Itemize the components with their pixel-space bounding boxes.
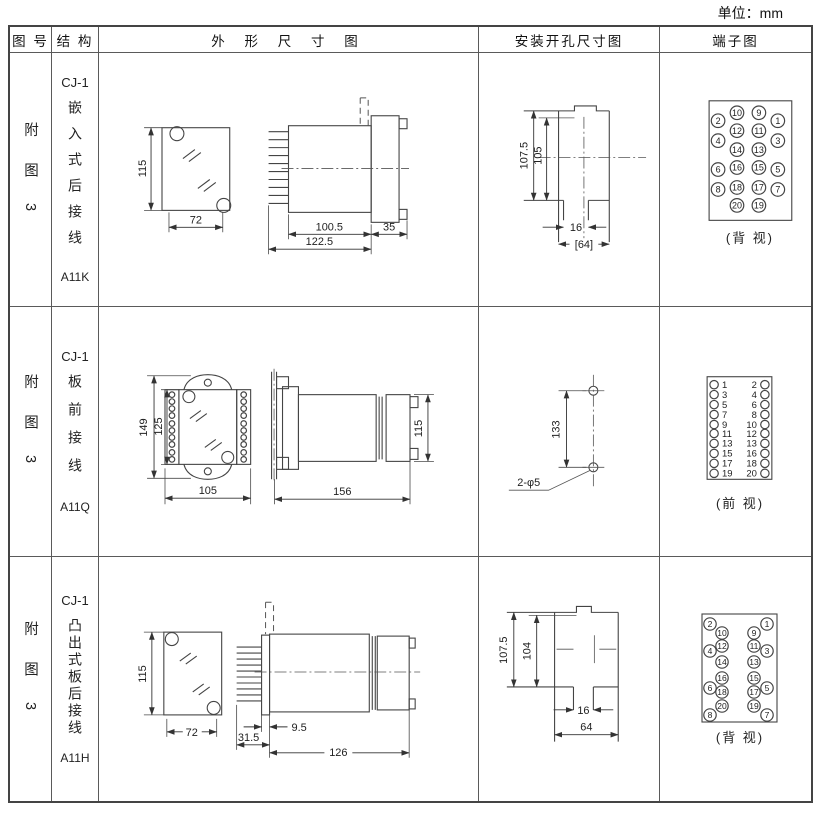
terminal-number: 17	[749, 687, 759, 697]
terminal-circle	[710, 390, 718, 398]
terminal-number: 14	[732, 145, 742, 155]
dim-front-width: 72	[190, 214, 202, 226]
outline-drawing-a11q: 149 125 105 115 156	[99, 307, 478, 556]
dim-install-span: 133	[551, 420, 563, 438]
dim-front-height: 115	[137, 665, 149, 683]
header-install-label: 安装开孔尺寸图	[515, 30, 624, 50]
terminal-number: 20	[732, 201, 742, 211]
figure-cell-a11k: 附图3	[10, 53, 52, 307]
terminal-circle	[710, 439, 718, 447]
install-cell-a11q: 133 2-φ5	[479, 307, 660, 557]
terminal-number: 7	[775, 185, 780, 195]
terminal-number: 8	[716, 185, 721, 195]
terminal-number: 11	[754, 126, 763, 136]
dim-side-body: 100.5	[316, 221, 343, 233]
figure-label: 附图3	[20, 374, 41, 489]
outline-cell-a11q: 149 125 105 115 156	[99, 307, 479, 557]
terminal-number: 10	[732, 108, 742, 118]
dim-front-height: 115	[137, 160, 149, 177]
dim-front-h2: 125	[153, 417, 165, 435]
code-label: A11H	[60, 751, 89, 765]
terminal-circle	[710, 381, 718, 389]
unit-label: 单位：mm	[718, 3, 783, 23]
terminal-number: 6	[708, 683, 713, 693]
code-label: A11K	[61, 270, 89, 284]
mounting-label: 凸出式板后接线	[65, 618, 85, 737]
terminal-number: 12	[732, 126, 742, 136]
dim-install-holes: 2-φ5	[517, 477, 540, 489]
terminal-circle	[241, 421, 247, 427]
terminal-number: 5	[775, 165, 780, 175]
terminal-circle	[169, 399, 175, 405]
terminal-number: 18	[717, 687, 727, 697]
dim-install-span: [64]	[575, 239, 593, 251]
dim-side-length: 156	[333, 486, 351, 498]
terminal-circle	[241, 392, 247, 398]
dim-side-height: 115	[413, 420, 425, 437]
terminal-number: 8	[708, 710, 713, 720]
terminal-number: 19	[754, 201, 764, 211]
terminal-view-label: (背 视)	[726, 230, 774, 245]
terminal-view-label: (前 视)	[716, 496, 764, 511]
terminal-circle	[241, 457, 247, 463]
terminal-number: 18	[732, 183, 742, 193]
install-cell-a11k: 107.5 105 16 [64]	[479, 53, 660, 307]
install-cell-a11h: 107.5 104 16 64	[479, 557, 660, 801]
terminal-number: 6	[716, 165, 721, 175]
dim-install-notch: 16	[570, 222, 582, 234]
terminal-circle	[169, 392, 175, 398]
terminal-number: 4	[716, 136, 721, 146]
terminal-circle	[761, 381, 769, 389]
terminal-number: 10	[717, 628, 727, 638]
figure-cell-a11h: 附图3	[10, 557, 52, 801]
header-install: 安装开孔尺寸图	[479, 27, 660, 53]
figure-cell-a11q: 附图3	[10, 307, 52, 557]
terminal-diagram-a11q: (前 视) 1234567891011121313151617181920	[660, 307, 811, 556]
outline-cell-a11k: 115 72 100.5 35 122.5	[99, 53, 479, 307]
model-label: CJ-1	[61, 75, 88, 90]
terminal-circle	[710, 410, 718, 418]
terminal-circle	[241, 442, 247, 448]
terminal-number: 9	[752, 628, 757, 638]
terminal-cell-a11q: (前 视) 1234567891011121313151617181920	[660, 307, 811, 557]
outline-drawing-a11k: 115 72 100.5 35 122.5	[99, 53, 478, 306]
terminal-circle	[761, 400, 769, 408]
install-drawing-a11k: 107.5 105 16 [64]	[479, 53, 659, 306]
dim-front-width: 105	[199, 485, 217, 497]
header-figure-label: 图 号	[12, 30, 49, 50]
terminal-number: 13	[754, 145, 764, 155]
terminal-circle	[169, 442, 175, 448]
terminal-circle	[169, 406, 175, 412]
terminal-circle	[761, 390, 769, 398]
install-drawing-a11q: 133 2-φ5	[479, 307, 659, 556]
terminal-number: 20	[717, 701, 727, 711]
terminal-number: 11	[750, 641, 759, 651]
terminal-circle	[761, 459, 769, 467]
terminal-number: 14	[717, 657, 727, 667]
terminal-circle	[710, 459, 718, 467]
terminal-cell-a11k: (背 视) 1092112114314131615651817872019	[660, 53, 811, 307]
structure-cell-a11h: CJ-1 凸出式板后接线 A11H	[52, 557, 99, 801]
dim-install-v1: 107.5	[498, 636, 510, 663]
terminal-circle	[761, 410, 769, 418]
terminal-number: 7	[765, 710, 770, 720]
outline-cell-a11h: 115 72 9.5 31.5 126	[99, 557, 479, 801]
install-drawing-a11h: 107.5 104 16 64	[479, 557, 659, 801]
figure-label: 附图3	[20, 621, 41, 736]
terminal-number: 5	[765, 683, 770, 693]
terminal-circle	[710, 449, 718, 457]
dim-side-flange: 35	[383, 221, 395, 233]
terminal-circle	[710, 400, 718, 408]
terminal-circle	[241, 428, 247, 434]
terminal-circle	[241, 435, 247, 441]
terminal-circle	[710, 429, 718, 437]
model-label: CJ-1	[61, 349, 88, 364]
terminal-circle	[761, 429, 769, 437]
terminal-circle	[710, 420, 718, 428]
outline-drawing-a11h: 115 72 9.5 31.5 126	[99, 557, 478, 801]
dim-install-v2: 105	[533, 147, 545, 165]
dim-front-h1: 149	[138, 418, 150, 436]
terminal-view-label: (背 视)	[716, 730, 764, 745]
terminal-number: 17	[754, 183, 764, 193]
terminal-circle	[241, 406, 247, 412]
terminal-number: 12	[717, 641, 727, 651]
dim-side-total: 122.5	[306, 236, 333, 248]
terminal-diagram-a11k: (背 视) 1092112114314131615651817872019	[660, 53, 811, 306]
dim-side-d1: 9.5	[291, 722, 306, 734]
terminal-number: 20	[746, 469, 757, 480]
terminal-circle	[761, 439, 769, 447]
terminal-number: 16	[732, 163, 742, 173]
terminal-number: 4	[708, 646, 713, 656]
dim-install-notch: 16	[577, 705, 589, 717]
spec-table: 图 号 结 构 外 形 尺 寸 图 安装开孔尺寸图 端子图 附图3 CJ-1 嵌…	[8, 25, 813, 803]
terminal-circle	[169, 435, 175, 441]
terminal-circle	[241, 450, 247, 456]
terminal-circle	[761, 420, 769, 428]
figure-label: 附图3	[20, 122, 41, 237]
terminal-number: 2	[708, 619, 713, 629]
header-structure-label: 结 构	[57, 30, 94, 50]
terminal-circle	[169, 413, 175, 419]
header-figure: 图 号	[10, 27, 52, 53]
terminal-number: 16	[717, 673, 727, 683]
terminal-number: 9	[756, 108, 761, 118]
model-label: CJ-1	[61, 593, 88, 608]
terminal-circle	[241, 399, 247, 405]
dim-install-v1: 107.5	[519, 142, 531, 169]
header-terminal-label: 端子图	[712, 30, 759, 50]
structure-cell-a11q: CJ-1 板前接线 A11Q	[52, 307, 99, 557]
terminal-circle	[761, 469, 769, 477]
terminal-number: 2	[716, 116, 721, 126]
dim-front-width: 72	[186, 727, 198, 739]
terminal-circle	[241, 413, 247, 419]
terminal-circle	[710, 469, 718, 477]
terminal-circle	[169, 428, 175, 434]
terminal-circle	[169, 450, 175, 456]
header-structure: 结 构	[52, 27, 99, 53]
mounting-label: 板前接线	[65, 374, 85, 486]
terminal-number: 1	[765, 619, 770, 629]
terminal-circle	[169, 421, 175, 427]
terminal-number: 3	[765, 646, 770, 656]
dim-install-span: 64	[580, 722, 592, 734]
header-terminal: 端子图	[660, 27, 811, 53]
terminal-number: 1	[775, 116, 780, 126]
terminal-circle	[761, 449, 769, 457]
header-outline-label: 外 形 尺 寸 图	[211, 30, 366, 50]
dim-side-d3: 126	[329, 747, 347, 759]
terminal-number: 15	[749, 673, 759, 683]
terminal-number: 13	[749, 657, 759, 667]
mounting-label: 嵌入式后接线	[65, 100, 85, 256]
terminal-cell-a11h: (背 视) 2110912114314131615651817201987	[660, 557, 811, 801]
terminal-number: 3	[775, 136, 780, 146]
terminal-number: 19	[722, 469, 733, 480]
terminal-circle	[169, 457, 175, 463]
structure-cell-a11k: CJ-1 嵌入式后接线 A11K	[52, 53, 99, 307]
code-label: A11Q	[60, 500, 90, 514]
dim-install-v2: 104	[522, 642, 534, 660]
terminal-number: 19	[749, 701, 759, 711]
terminal-number: 15	[754, 163, 764, 173]
terminal-diagram-a11h: (背 视) 2110912114314131615651817201987	[660, 557, 811, 801]
header-outline: 外 形 尺 寸 图	[99, 27, 479, 53]
dim-side-d2: 31.5	[238, 732, 259, 744]
